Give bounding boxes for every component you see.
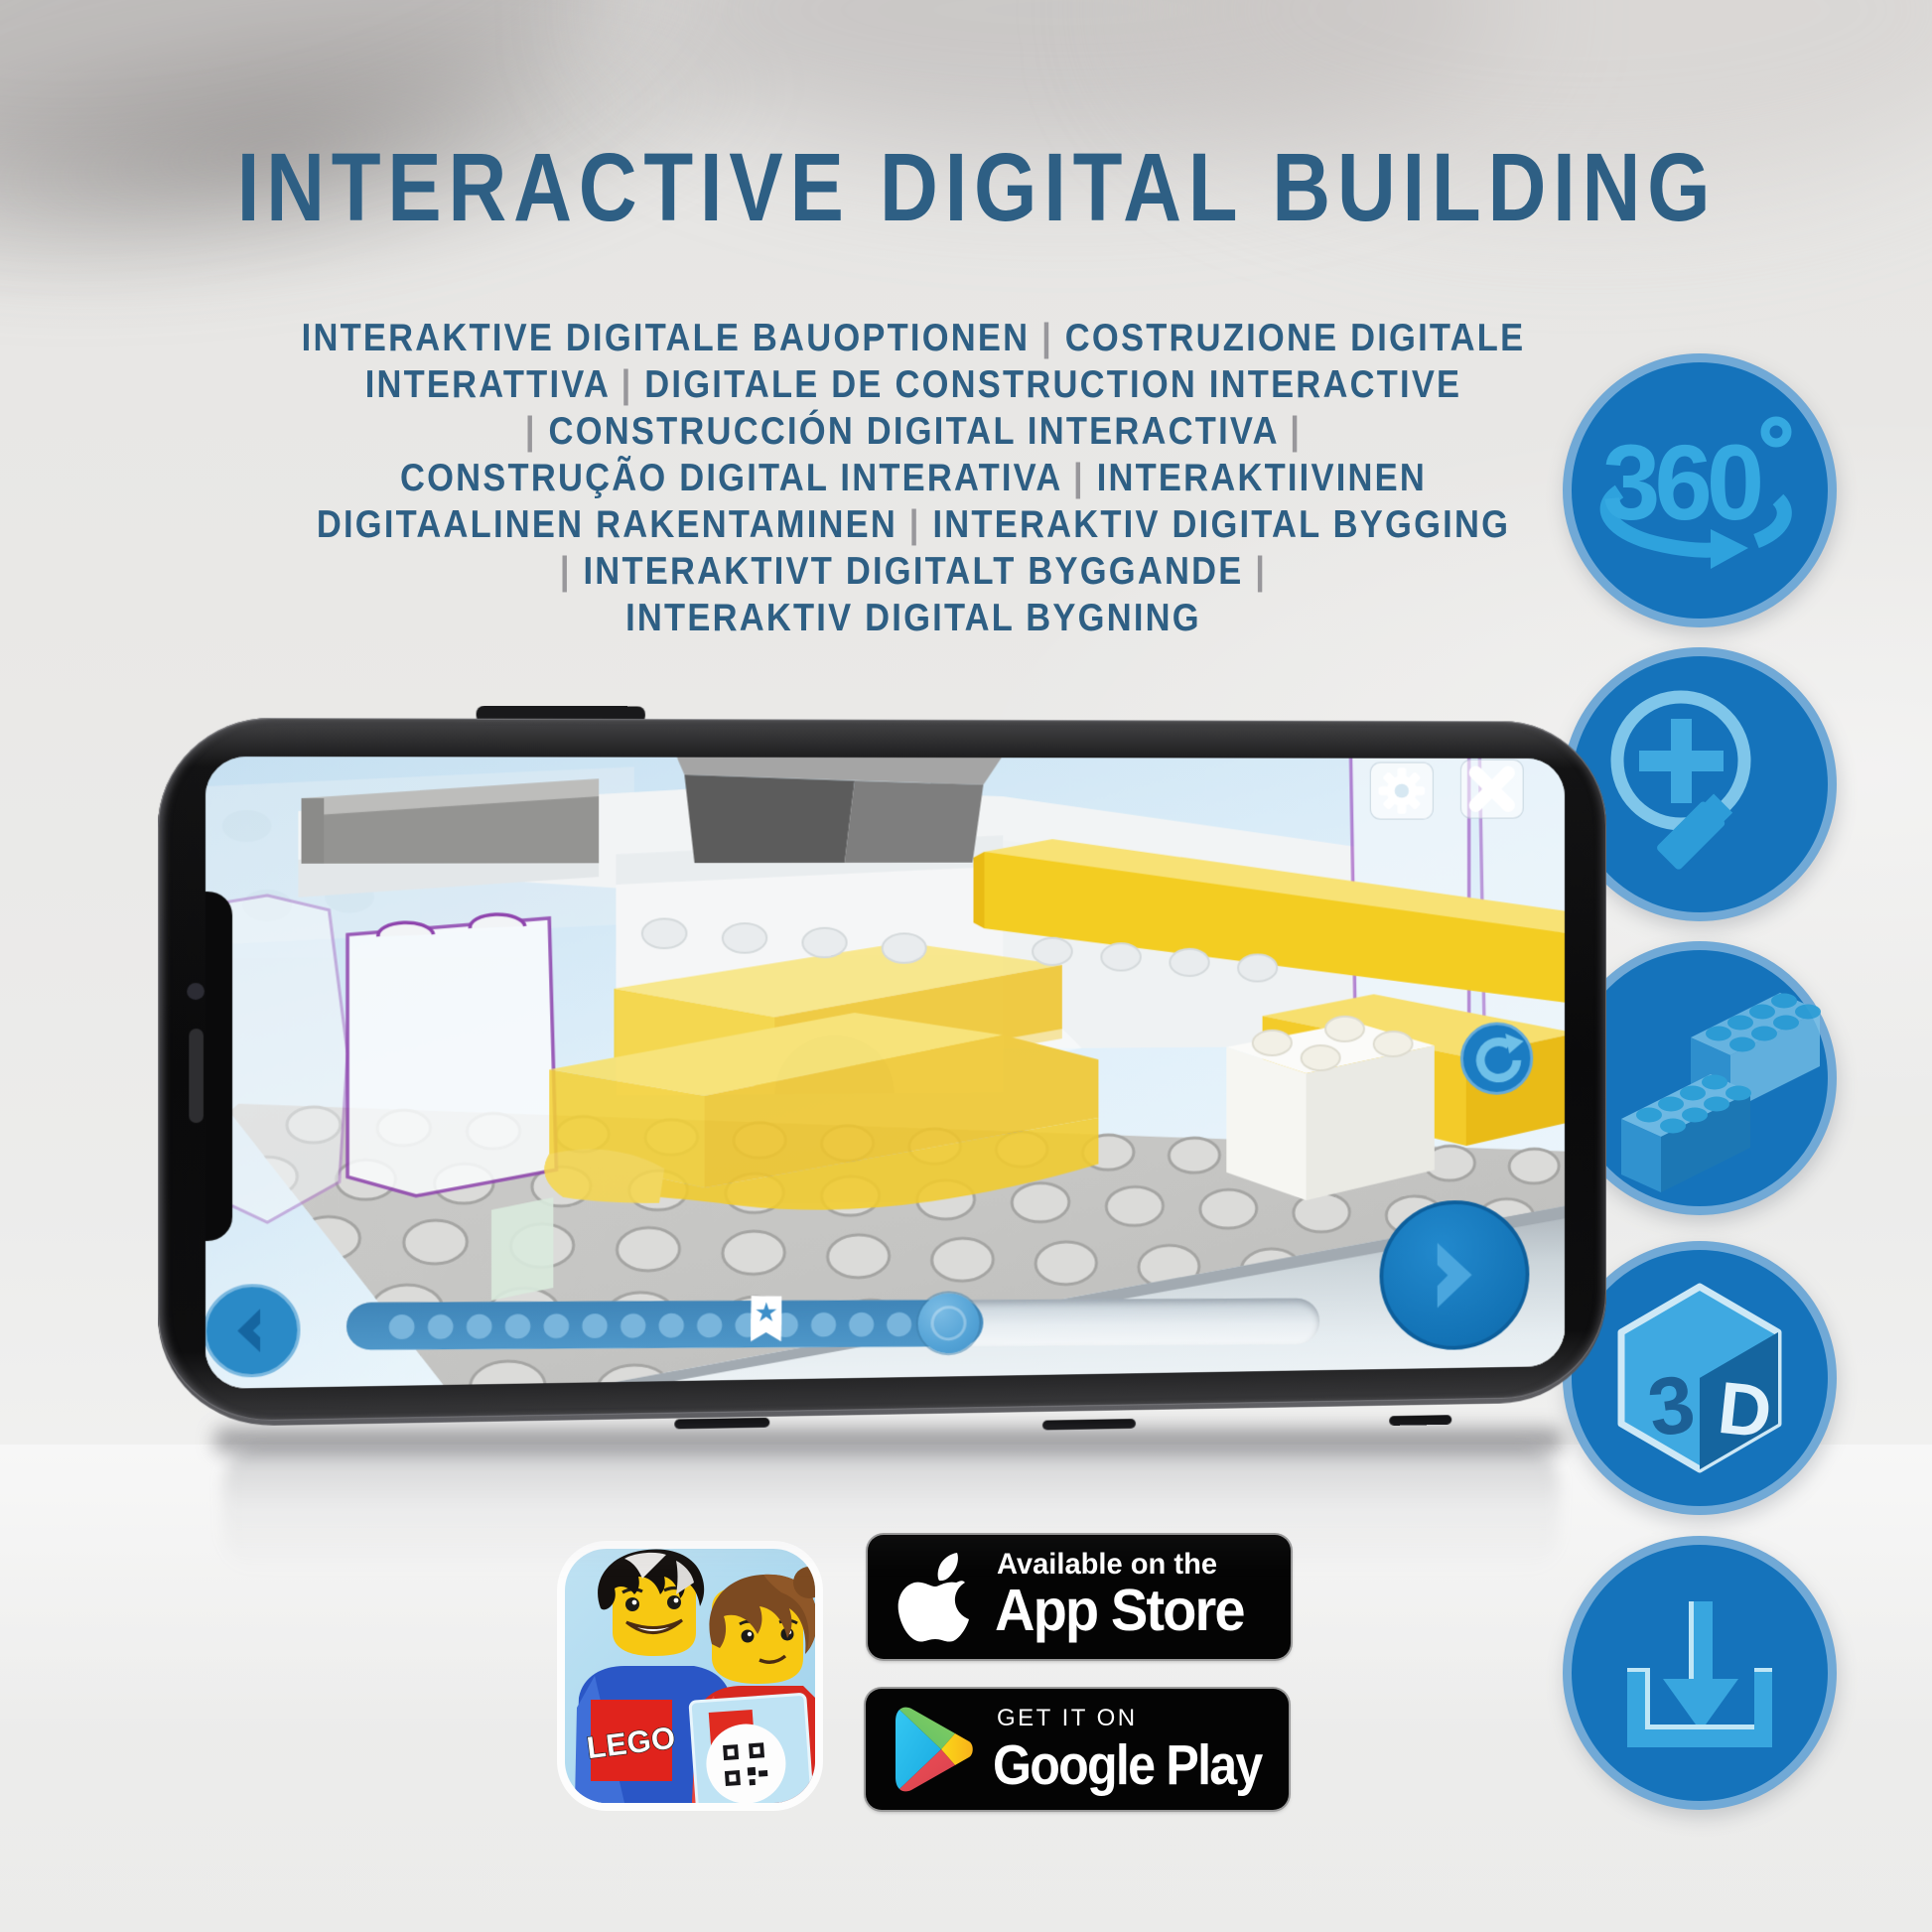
svg-text:D: D <box>1715 1366 1776 1453</box>
svg-text:360: 360 <box>1602 423 1760 543</box>
